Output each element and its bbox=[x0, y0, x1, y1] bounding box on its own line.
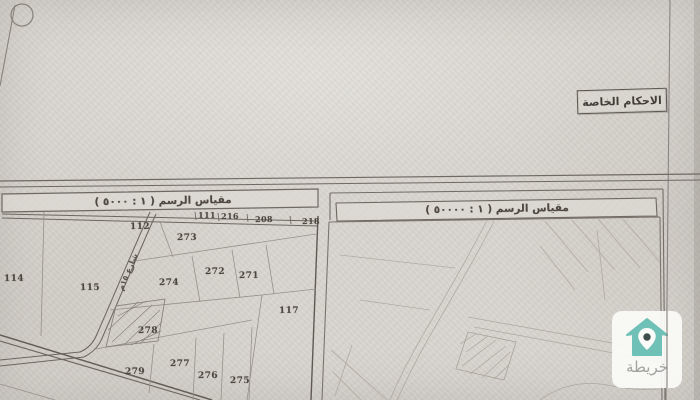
plot-number-218: 218 bbox=[302, 216, 320, 226]
crease-over-watermark bbox=[666, 311, 668, 388]
plot-number-216: 216 bbox=[221, 211, 239, 221]
plot-number-114: 114 bbox=[4, 274, 24, 284]
paper-right-edge bbox=[694, 0, 700, 400]
watermark-brand-text: خريطة bbox=[626, 358, 668, 376]
paper-fold-line bbox=[0, 5, 15, 86]
plot-number-115: 115 bbox=[80, 283, 100, 293]
plot-number-112: 112 bbox=[130, 222, 150, 232]
plot-number-279: 279 bbox=[125, 367, 145, 377]
plot-number-274: 274 bbox=[159, 278, 179, 288]
plot-number-276: 276 bbox=[198, 371, 218, 381]
kharita-watermark: خريطة bbox=[612, 311, 682, 388]
plot-number-208: 208 bbox=[255, 214, 273, 224]
left-scale-label: مقياس الرسم ( ١ : ٥٠٠٠ ) bbox=[94, 194, 231, 208]
plot-number-117: 117 bbox=[279, 306, 299, 316]
paper-clip-mark bbox=[11, 4, 33, 26]
plot-number-272: 272 bbox=[205, 267, 225, 277]
house-pin-icon bbox=[625, 317, 669, 357]
plot-number-275: 275 bbox=[230, 376, 250, 386]
plot-number-271: 271 bbox=[239, 271, 259, 281]
plot-number-111: 111 bbox=[198, 210, 216, 220]
right-map-hatched-area bbox=[456, 332, 516, 380]
right-scale-label: مقياس الرسم ( ١ : ٥٠٠٠٠ ) bbox=[425, 202, 569, 216]
special-provisions-label: الاحكام الخاصة bbox=[582, 93, 662, 108]
plot-number-273: 273 bbox=[177, 233, 197, 243]
plot-number-278: 278 bbox=[138, 326, 158, 336]
special-provisions-box: الاحكام الخاصة bbox=[577, 88, 668, 115]
plot-number-277: 277 bbox=[170, 359, 190, 369]
right-map-frame bbox=[322, 217, 662, 400]
scanned-cadastral-plan: الاحكام الخاصة مقياس الرسم ( ١ : ٥٠٠٠ ) … bbox=[0, 0, 700, 400]
